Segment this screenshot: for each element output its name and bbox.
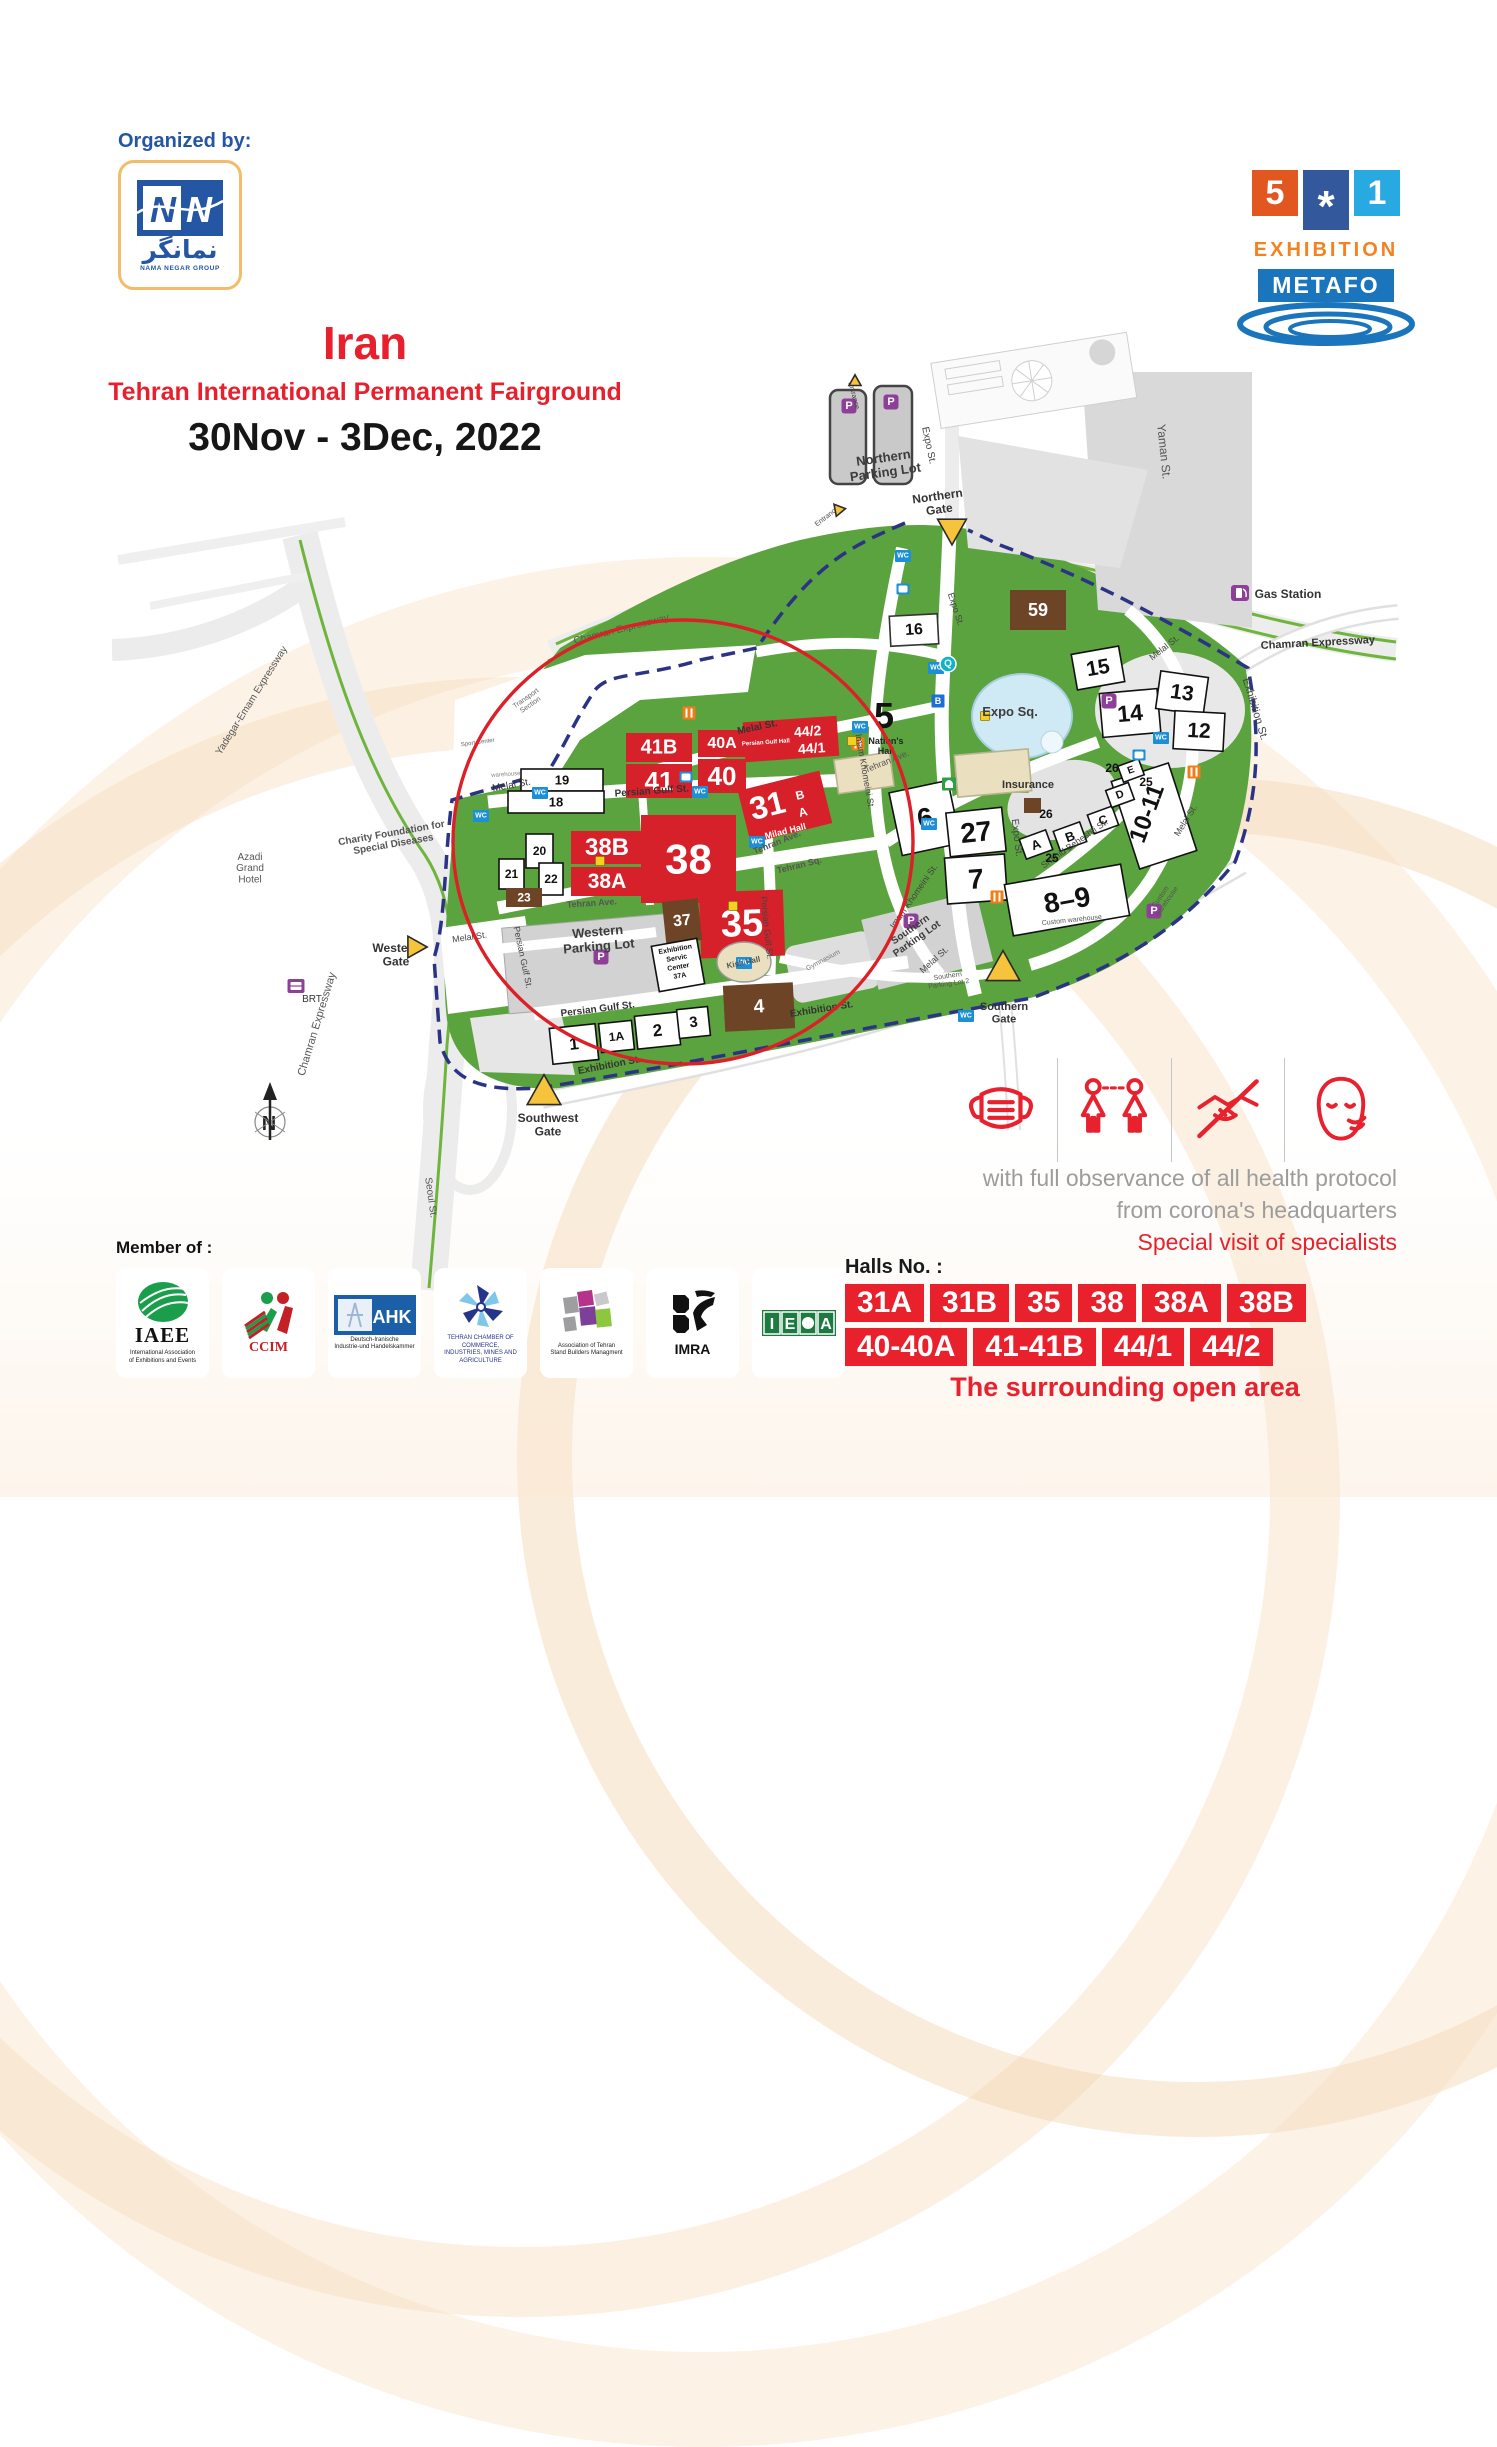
tehran-chamber-logo: TEHRAN CHAMBER OF COMMERCE, INDUSTRIES, … xyxy=(434,1268,527,1378)
hall-badge-44/1: 44/1 xyxy=(1102,1328,1184,1366)
svg-text:23: 23 xyxy=(517,891,531,905)
bus-icon xyxy=(897,584,910,595)
gas-icon xyxy=(1231,585,1249,601)
svg-text:4: 4 xyxy=(753,996,765,1018)
svg-text:38A: 38A xyxy=(588,870,627,893)
hall-23: 23 xyxy=(506,888,542,907)
hall-12: 12 xyxy=(1173,711,1225,752)
wc-icon: WC xyxy=(532,787,548,799)
map-label: Gas Station xyxy=(1255,587,1322,601)
hall-18: 18 xyxy=(508,791,604,813)
no-handshake-icon xyxy=(1171,1058,1284,1162)
svg-text:18: 18 xyxy=(549,795,563,810)
health-text-line1: with full observance of all health proto… xyxy=(945,1162,1397,1194)
svg-text:A: A xyxy=(820,1316,832,1333)
brt-icon xyxy=(288,979,305,993)
hall-59: 59 xyxy=(1010,590,1066,630)
hall-badge-41-41B: 41-41B xyxy=(973,1328,1095,1366)
map-label: AzadiGrandHotel xyxy=(236,852,264,885)
hall-38: 38 xyxy=(641,815,736,903)
hall-22: 22 xyxy=(539,863,563,895)
health-protocol-section: with full observance of all health proto… xyxy=(945,1058,1397,1259)
svg-text:37: 37 xyxy=(672,912,692,931)
svg-text:WC: WC xyxy=(475,813,487,820)
social-distance-icon xyxy=(1057,1058,1170,1162)
hall-41B: 41B xyxy=(626,733,692,762)
svg-text:14: 14 xyxy=(1116,699,1144,727)
ccim-logo: CCIM xyxy=(222,1268,315,1378)
q-icon: Q xyxy=(940,656,956,672)
bus-icon xyxy=(1133,750,1146,761)
map-label: BRT xyxy=(302,994,322,1005)
map-label: Yadegar-Emam Expressway xyxy=(214,644,290,757)
svg-text:21: 21 xyxy=(505,867,519,881)
bus-icon xyxy=(680,772,693,783)
masked-face-icon xyxy=(1284,1058,1397,1162)
hall-badge-40-40A: 40-40A xyxy=(845,1328,967,1366)
hall-2: 2 xyxy=(634,1012,680,1049)
health-text-line3: Special visit of specialists xyxy=(945,1226,1397,1258)
hall-15: 15 xyxy=(1071,646,1125,690)
surrounding-open-area-label: The surrounding open area xyxy=(845,1372,1405,1403)
p-icon: P xyxy=(1102,694,1117,709)
ieoa-bar-icon: I E A xyxy=(762,1310,836,1336)
map-label: Expo Sq. xyxy=(982,704,1038,719)
chamber-pinwheel-icon xyxy=(455,1281,507,1333)
ylw-icon xyxy=(729,902,738,911)
svg-text:WC: WC xyxy=(534,790,546,797)
svg-text:E: E xyxy=(784,1316,795,1333)
member-of-section: Member of : IAEE International Associati… xyxy=(116,1238,856,1378)
map-label: 5 xyxy=(874,695,894,736)
ylw-icon xyxy=(596,857,605,866)
health-text-line2: from corona's headquarters xyxy=(945,1194,1397,1226)
svg-text:41B: 41B xyxy=(641,737,678,759)
hall-38A: 38A xyxy=(571,867,643,896)
wc-icon: WC xyxy=(692,786,708,798)
hall-badge-35: 35 xyxy=(1015,1284,1072,1322)
imra-mark-icon xyxy=(665,1289,721,1339)
ahk-icon: AHK xyxy=(334,1295,416,1335)
compass-north-icon xyxy=(255,1082,285,1140)
svg-text:40A: 40A xyxy=(707,735,737,752)
cubes-icon xyxy=(558,1289,616,1341)
svg-text:B: B xyxy=(935,696,942,706)
imra-logo: IMRA xyxy=(646,1268,739,1378)
svg-text:20: 20 xyxy=(533,844,547,858)
svg-text:WC: WC xyxy=(694,789,706,796)
svg-text:AHK: AHK xyxy=(372,1307,411,1327)
mask-icon xyxy=(945,1058,1057,1162)
hall-badge-38: 38 xyxy=(1078,1284,1135,1322)
svg-text:59: 59 xyxy=(1028,600,1048,620)
map-label: 25 xyxy=(1045,851,1059,865)
hall-badge-31B: 31B xyxy=(930,1284,1009,1322)
svg-text:Q: Q xyxy=(944,659,952,670)
hall-4: 4 xyxy=(723,982,795,1032)
rest-icon xyxy=(683,707,696,720)
iaee-logo: IAEE International Association of Exhibi… xyxy=(116,1268,209,1378)
svg-text:27: 27 xyxy=(959,815,993,849)
svg-text:P: P xyxy=(1105,695,1112,707)
wc-icon: WC xyxy=(895,550,911,562)
member-of-title: Member of : xyxy=(116,1238,856,1258)
hall-16: 16 xyxy=(889,614,939,646)
hall-badge-38A: 38A xyxy=(1142,1284,1221,1322)
svg-text:40: 40 xyxy=(708,761,737,791)
svg-text:35: 35 xyxy=(720,902,764,945)
map-label: SouthwestGate xyxy=(518,1111,579,1138)
halls-badge-row2: 40-40A41-41B44/144/2 xyxy=(845,1328,1405,1366)
wc-icon: WC xyxy=(921,818,937,830)
hall-21: 21 xyxy=(499,859,524,889)
hall-1A: 1A xyxy=(599,1020,635,1052)
wc-icon: WC xyxy=(958,1010,974,1022)
iaee-globe-icon xyxy=(136,1281,190,1323)
map-label: Expo St. xyxy=(919,426,938,465)
wc-icon: WC xyxy=(1153,732,1169,744)
halls-badge-row1: 31A31B353838A38B xyxy=(845,1284,1405,1322)
map-label: 25 xyxy=(1139,775,1153,789)
entrance-triangle xyxy=(849,375,861,386)
svg-text:WC: WC xyxy=(1155,735,1167,742)
b-icon: B xyxy=(932,695,945,708)
svg-text:1A: 1A xyxy=(608,1029,625,1045)
wc-icon: WC xyxy=(473,810,489,822)
map-label: 44/1 xyxy=(798,739,827,757)
hall-badge-31A: 31A xyxy=(845,1284,924,1322)
svg-text:I: I xyxy=(769,1316,773,1333)
map-label: 26 xyxy=(1039,807,1053,821)
svg-text:WC: WC xyxy=(897,553,909,560)
svg-text:19: 19 xyxy=(555,773,569,788)
map-label: SouthernGate xyxy=(980,1001,1029,1025)
svg-text:12: 12 xyxy=(1187,719,1212,743)
svg-text:38B: 38B xyxy=(585,834,629,861)
svg-text:22: 22 xyxy=(544,872,558,886)
rest-icon xyxy=(1188,766,1201,779)
hall-27: 27 xyxy=(946,807,1006,857)
map-label: 26 xyxy=(1105,761,1119,775)
svg-text:WC: WC xyxy=(854,724,866,731)
halls-legend: Halls No. : 31A31B353838A38B 40-40A41-41… xyxy=(845,1256,1405,1403)
svg-text:16: 16 xyxy=(905,621,924,639)
wc-icon: WC xyxy=(852,721,868,733)
hall-37: 37 xyxy=(662,898,702,944)
hall-badge-44/2: 44/2 xyxy=(1190,1328,1272,1366)
p-icon: P xyxy=(884,395,899,410)
svg-text:2: 2 xyxy=(652,1021,663,1041)
svg-text:P: P xyxy=(887,396,894,408)
svg-text:15: 15 xyxy=(1085,655,1112,682)
svg-text:3: 3 xyxy=(688,1014,698,1032)
exhibition-service-center: ExhibitionServicCenter37A xyxy=(651,938,704,991)
hall-38B: 38B xyxy=(571,831,643,864)
ccim-figures-icon xyxy=(241,1290,297,1340)
stand-builders-logo: Association of Tehran Stand Builders Man… xyxy=(540,1268,633,1378)
hall-badge-38B: 38B xyxy=(1227,1284,1306,1322)
ahk-logo: AHK Deutsch-Iranische Industrie-und Hand… xyxy=(328,1268,421,1378)
map-label: 44/2 xyxy=(794,722,823,740)
hall-13: 13 xyxy=(1156,671,1209,715)
map-label: Insurance xyxy=(1002,779,1054,791)
hall-3: 3 xyxy=(677,1006,711,1038)
svg-text:WC: WC xyxy=(960,1013,972,1020)
halls-legend-title: Halls No. : xyxy=(845,1256,1405,1279)
rest-icon xyxy=(991,891,1004,904)
mosque-icon xyxy=(942,778,956,791)
ieoa-logo: I E A xyxy=(752,1268,845,1378)
svg-text:7: 7 xyxy=(967,863,985,895)
svg-text:13: 13 xyxy=(1169,680,1195,706)
svg-text:38: 38 xyxy=(665,836,712,883)
svg-text:WC: WC xyxy=(923,821,935,828)
